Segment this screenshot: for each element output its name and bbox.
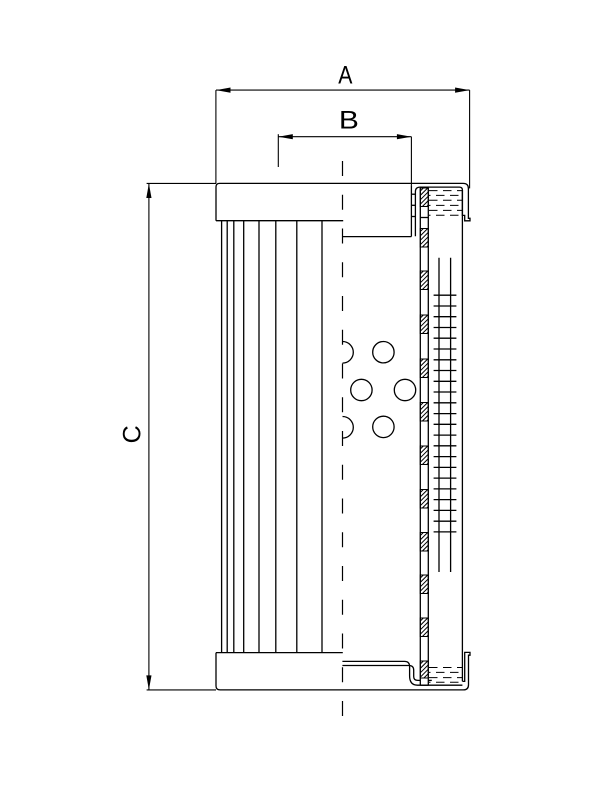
svg-text:C: C <box>119 425 147 443</box>
svg-text:B: B <box>339 106 359 134</box>
svg-text:A: A <box>338 61 353 89</box>
